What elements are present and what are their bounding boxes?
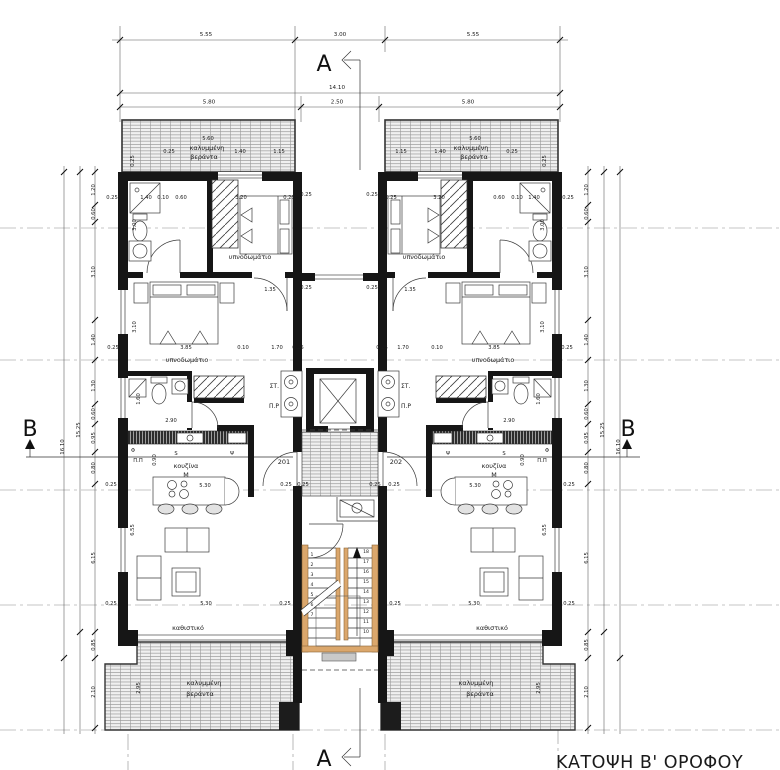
dimension-annotation: 3.20 — [433, 195, 445, 201]
dimension-annotation: 6.55 — [542, 524, 548, 536]
dimension-label: 14.10 — [329, 85, 345, 91]
room-label: βεράντα — [186, 690, 213, 698]
dimension-annotation: 0.25 — [561, 345, 573, 351]
dimension-label: 0.80 — [91, 462, 97, 474]
dimension-annotation: 0.25 — [297, 482, 309, 488]
dimension-annotation: 5.30 — [200, 601, 212, 607]
room-label: καθιστικό — [172, 624, 204, 632]
dimension-annotation: 3.20 — [235, 195, 247, 201]
dimension-annotation: 0.10 — [511, 195, 523, 201]
room-label: κουζίνα — [174, 462, 199, 470]
dimension-annotation: 0.10 — [431, 345, 443, 351]
dimension-annotation: 0.25 — [292, 345, 304, 351]
dimension-annotation: 3.10 — [132, 321, 138, 333]
side-total-right: 16.10 — [616, 439, 622, 455]
dimension-annotation: 1.35 — [264, 287, 276, 293]
dimension-annotation: 2.90 — [503, 418, 515, 424]
bed-top — [240, 196, 292, 254]
room-label: καλυμμένη — [187, 679, 222, 687]
room-label: βεράντα — [190, 153, 217, 161]
dimension-label: 3.00 — [334, 32, 347, 38]
section-a-top: A — [316, 52, 331, 77]
dimension-annotation: 0.25 — [163, 149, 175, 155]
dimension-annotation: 1.35 — [404, 287, 416, 293]
dimension-annotation: 0.25 — [106, 195, 118, 201]
dimension-annotation: 3.00 — [540, 219, 546, 231]
bed-middle — [134, 282, 234, 344]
dimension-label: 1.30 — [91, 380, 97, 392]
section-b-right: B — [620, 417, 635, 442]
dimension-annotation: 6.55 — [130, 524, 136, 536]
dimension-annotation: 2.95 — [136, 682, 142, 694]
dimension-label: 3.10 — [91, 266, 97, 278]
stair-step-number: 14 — [363, 589, 369, 595]
dimension-annotation: 0.25 — [366, 192, 378, 198]
dimension-label: 1.30 — [584, 380, 590, 392]
dimension-annotation: 3.00 — [132, 219, 138, 231]
dimension-annotation: 0.25 — [366, 285, 378, 291]
closet-hatch-2 — [436, 376, 486, 398]
side-subtotal-right: 15.25 — [600, 422, 606, 437]
dimension-annotation: 1.40 — [234, 149, 246, 155]
closet-hatch — [212, 180, 238, 248]
dimension-annotation: 3.85 — [180, 345, 192, 351]
dimension-annotation: Ψ — [446, 451, 450, 457]
veranda-pillar-left — [279, 702, 299, 730]
dimension-annotation: 5.30 — [469, 483, 481, 489]
side-total-left: 16.10 — [60, 439, 66, 455]
dimension-annotation: 0.60 — [175, 195, 187, 201]
room-label: υπνοδωμάτιο — [166, 356, 209, 364]
side-subtotal-left: 15.25 — [76, 422, 82, 437]
dimension-annotation: 0.25 — [385, 195, 397, 201]
dimension-annotation: 1.70 — [271, 345, 283, 351]
room-label: καλυμμένη — [454, 144, 489, 152]
dimension-label: 3.10 — [584, 266, 590, 278]
dimension-annotation: Ψ — [230, 451, 234, 457]
dimension-label: 5.80 — [462, 100, 475, 106]
section-a-bottom: A — [316, 747, 331, 770]
dimension-annotation: 3.10 — [540, 321, 546, 333]
living-right — [471, 528, 543, 600]
dimension-annotation: 0.25 — [130, 155, 136, 167]
room-label: καλυμμένη — [190, 144, 225, 152]
dimension-annotation: 5.30 — [468, 601, 480, 607]
stair-step-number: 18 — [363, 549, 369, 555]
dimension-annotation: 0.25 — [300, 285, 312, 291]
dimension-label: 0.85 — [91, 639, 97, 651]
dimension-annotation: S — [174, 451, 177, 457]
dimension-label: 0.80 — [584, 462, 590, 474]
dimension-label: 1.40 — [584, 334, 590, 346]
stair-step-number: 17 — [363, 559, 369, 565]
dimension-annotation: 0.25 — [563, 601, 575, 607]
floor-plan-page: A A B B 201 202 ΣΤ. Π.Ρ ΣΤ. Π.Ρ 15.25 16… — [0, 0, 780, 770]
closet-hatch-2 — [194, 376, 244, 398]
unit-number-right: 202 — [390, 458, 402, 466]
bed-top — [388, 196, 440, 254]
dimension-annotation: 1.15 — [273, 149, 285, 155]
room-label: υπνοδωμάτιο — [229, 253, 272, 261]
dimension-annotation: 0.25 — [542, 155, 548, 167]
dimension-annotation: 2.95 — [536, 682, 542, 694]
dimension-annotation: 0.25 — [506, 149, 518, 155]
dimension-annotation: 0.10 — [157, 195, 169, 201]
dimension-label: 2.10 — [91, 686, 97, 698]
stair-step-number: 7 — [311, 612, 314, 618]
dimension-label: 6.15 — [91, 552, 97, 564]
stair-direction-arrow — [353, 547, 361, 558]
stair-step-number: 1 — [311, 552, 314, 558]
shaft-label-st-left: ΣΤ. — [270, 383, 279, 390]
dimension-annotation: 1.40 — [140, 195, 152, 201]
dimension-label: 6.15 — [584, 552, 590, 564]
dimension-annotation: Φ — [545, 448, 549, 454]
bed-middle — [446, 282, 546, 344]
dimension-annotation: 0.25 — [283, 195, 295, 201]
stair-step-number: 5 — [311, 592, 314, 598]
dimension-label: 1.20 — [584, 184, 590, 196]
living-left — [137, 528, 209, 600]
stair-step-number: 4 — [311, 582, 314, 588]
dimension-annotation: 0.25 — [388, 482, 400, 488]
bathroom-middle-right — [492, 377, 551, 404]
dimension-annotation: 0.25 — [105, 482, 117, 488]
dimension-annotation: Π.Π — [537, 458, 547, 464]
dimension-label: 1.20 — [91, 184, 97, 196]
dimension-annotation: 0.90 — [152, 454, 158, 466]
dimension-label: 0.60 — [584, 208, 590, 220]
dimension-annotation: 0.25 — [369, 482, 381, 488]
stair-step-number: 3 — [311, 572, 314, 578]
dimension-annotation: 0.25 — [280, 482, 292, 488]
dimension-label: 5.55 — [200, 32, 213, 38]
dimension-annotation: 2.90 — [165, 418, 177, 424]
room-label: βεράντα — [466, 690, 493, 698]
dimension-annotation: S — [502, 451, 505, 457]
dimension-annotation: 5.30 — [199, 483, 211, 489]
dimension-annotation: 0.25 — [300, 192, 312, 198]
dimension-annotation: 0.25 — [107, 345, 119, 351]
landing-hatch — [302, 432, 378, 496]
dimension-label: 0.60 — [91, 408, 97, 420]
dimension-label: 0.95 — [584, 432, 590, 444]
stair-step-number: 2 — [311, 562, 314, 568]
stair-step-number: 15 — [363, 579, 369, 585]
dimension-annotation: 1.70 — [397, 345, 409, 351]
dimension-annotation: 0.60 — [493, 195, 505, 201]
room-label: κουζίνα — [482, 462, 507, 470]
dimension-label: 2.10 — [584, 686, 590, 698]
dimension-annotation: 1.60 — [136, 393, 142, 405]
dimension-annotation: 0.10 — [237, 345, 249, 351]
dimension-label: 5.80 — [203, 100, 216, 106]
shaft-label-st-right: ΣΤ. — [401, 383, 410, 390]
dimension-label: 0.60 — [584, 408, 590, 420]
stair-step-number: 13 — [363, 599, 369, 605]
dimension-annotation: 1.40 — [434, 149, 446, 155]
riser-niche-left — [281, 371, 302, 417]
stair-step-number: 16 — [363, 569, 369, 575]
veranda-pillar-right — [381, 702, 401, 730]
drawing-title: ΚΑΤΟΨΗ Β' ΟΡΟΦΟΥ — [556, 753, 743, 770]
unit-number-left: 201 — [278, 458, 290, 466]
dimension-annotation: Φ — [131, 448, 135, 454]
dimension-annotation: 0.25 — [105, 601, 117, 607]
floor-plan-drawing: A A B B 201 202 ΣΤ. Π.Ρ ΣΤ. Π.Ρ 15.25 16… — [0, 0, 780, 770]
dimension-label: 0.85 — [584, 639, 590, 651]
dimension-label: 5.55 — [467, 32, 480, 38]
stair-step-number: 10 — [363, 629, 369, 635]
room-label: Μ — [183, 471, 189, 479]
stair-step-number: 12 — [363, 609, 369, 615]
dimension-annotation: 1.40 — [528, 195, 540, 201]
dimension-annotation: 0.25 — [389, 601, 401, 607]
room-label: βεράντα — [460, 153, 487, 161]
dimension-label: 1.40 — [91, 334, 97, 346]
room-label: υπνοδωμάτιο — [403, 253, 446, 261]
dimension-annotation: 0.25 — [279, 601, 291, 607]
dimension-annotation: 1.15 — [395, 149, 407, 155]
room-label: υπνοδωμάτιο — [472, 356, 515, 364]
dimension-annotation: 3.85 — [488, 345, 500, 351]
riser-niche-right — [378, 371, 399, 417]
section-b-left: B — [22, 417, 37, 442]
entrance-threshold — [322, 653, 356, 661]
dimension-annotation: 5.60 — [202, 136, 214, 142]
stair-step-number: 11 — [363, 619, 369, 625]
room-label: Μ — [491, 471, 497, 479]
closet-hatch — [441, 180, 467, 248]
dimension-label: 0.60 — [91, 208, 97, 220]
elevator — [306, 368, 374, 432]
dimension-annotation: 1.60 — [536, 393, 542, 405]
dimension-label: 2.50 — [331, 100, 344, 106]
dimension-annotation: Π.Π — [133, 458, 143, 464]
dimension-annotation: 5.60 — [469, 136, 481, 142]
dimension-annotation: 0.90 — [520, 454, 526, 466]
boiler-room — [337, 497, 378, 521]
dimension-annotation: 0.25 — [376, 345, 388, 351]
shaft-label-pr-left: Π.Ρ — [269, 403, 279, 410]
stair-step-number: 6 — [311, 602, 314, 608]
room-label: καθιστικό — [476, 624, 508, 632]
dimension-label: 0.95 — [91, 432, 97, 444]
dimension-annotation: 0.25 — [563, 482, 575, 488]
dimension-annotation: 0.25 — [562, 195, 574, 201]
shaft-label-pr-right: Π.Ρ — [401, 403, 411, 410]
room-label: καλυμμένη — [459, 679, 494, 687]
